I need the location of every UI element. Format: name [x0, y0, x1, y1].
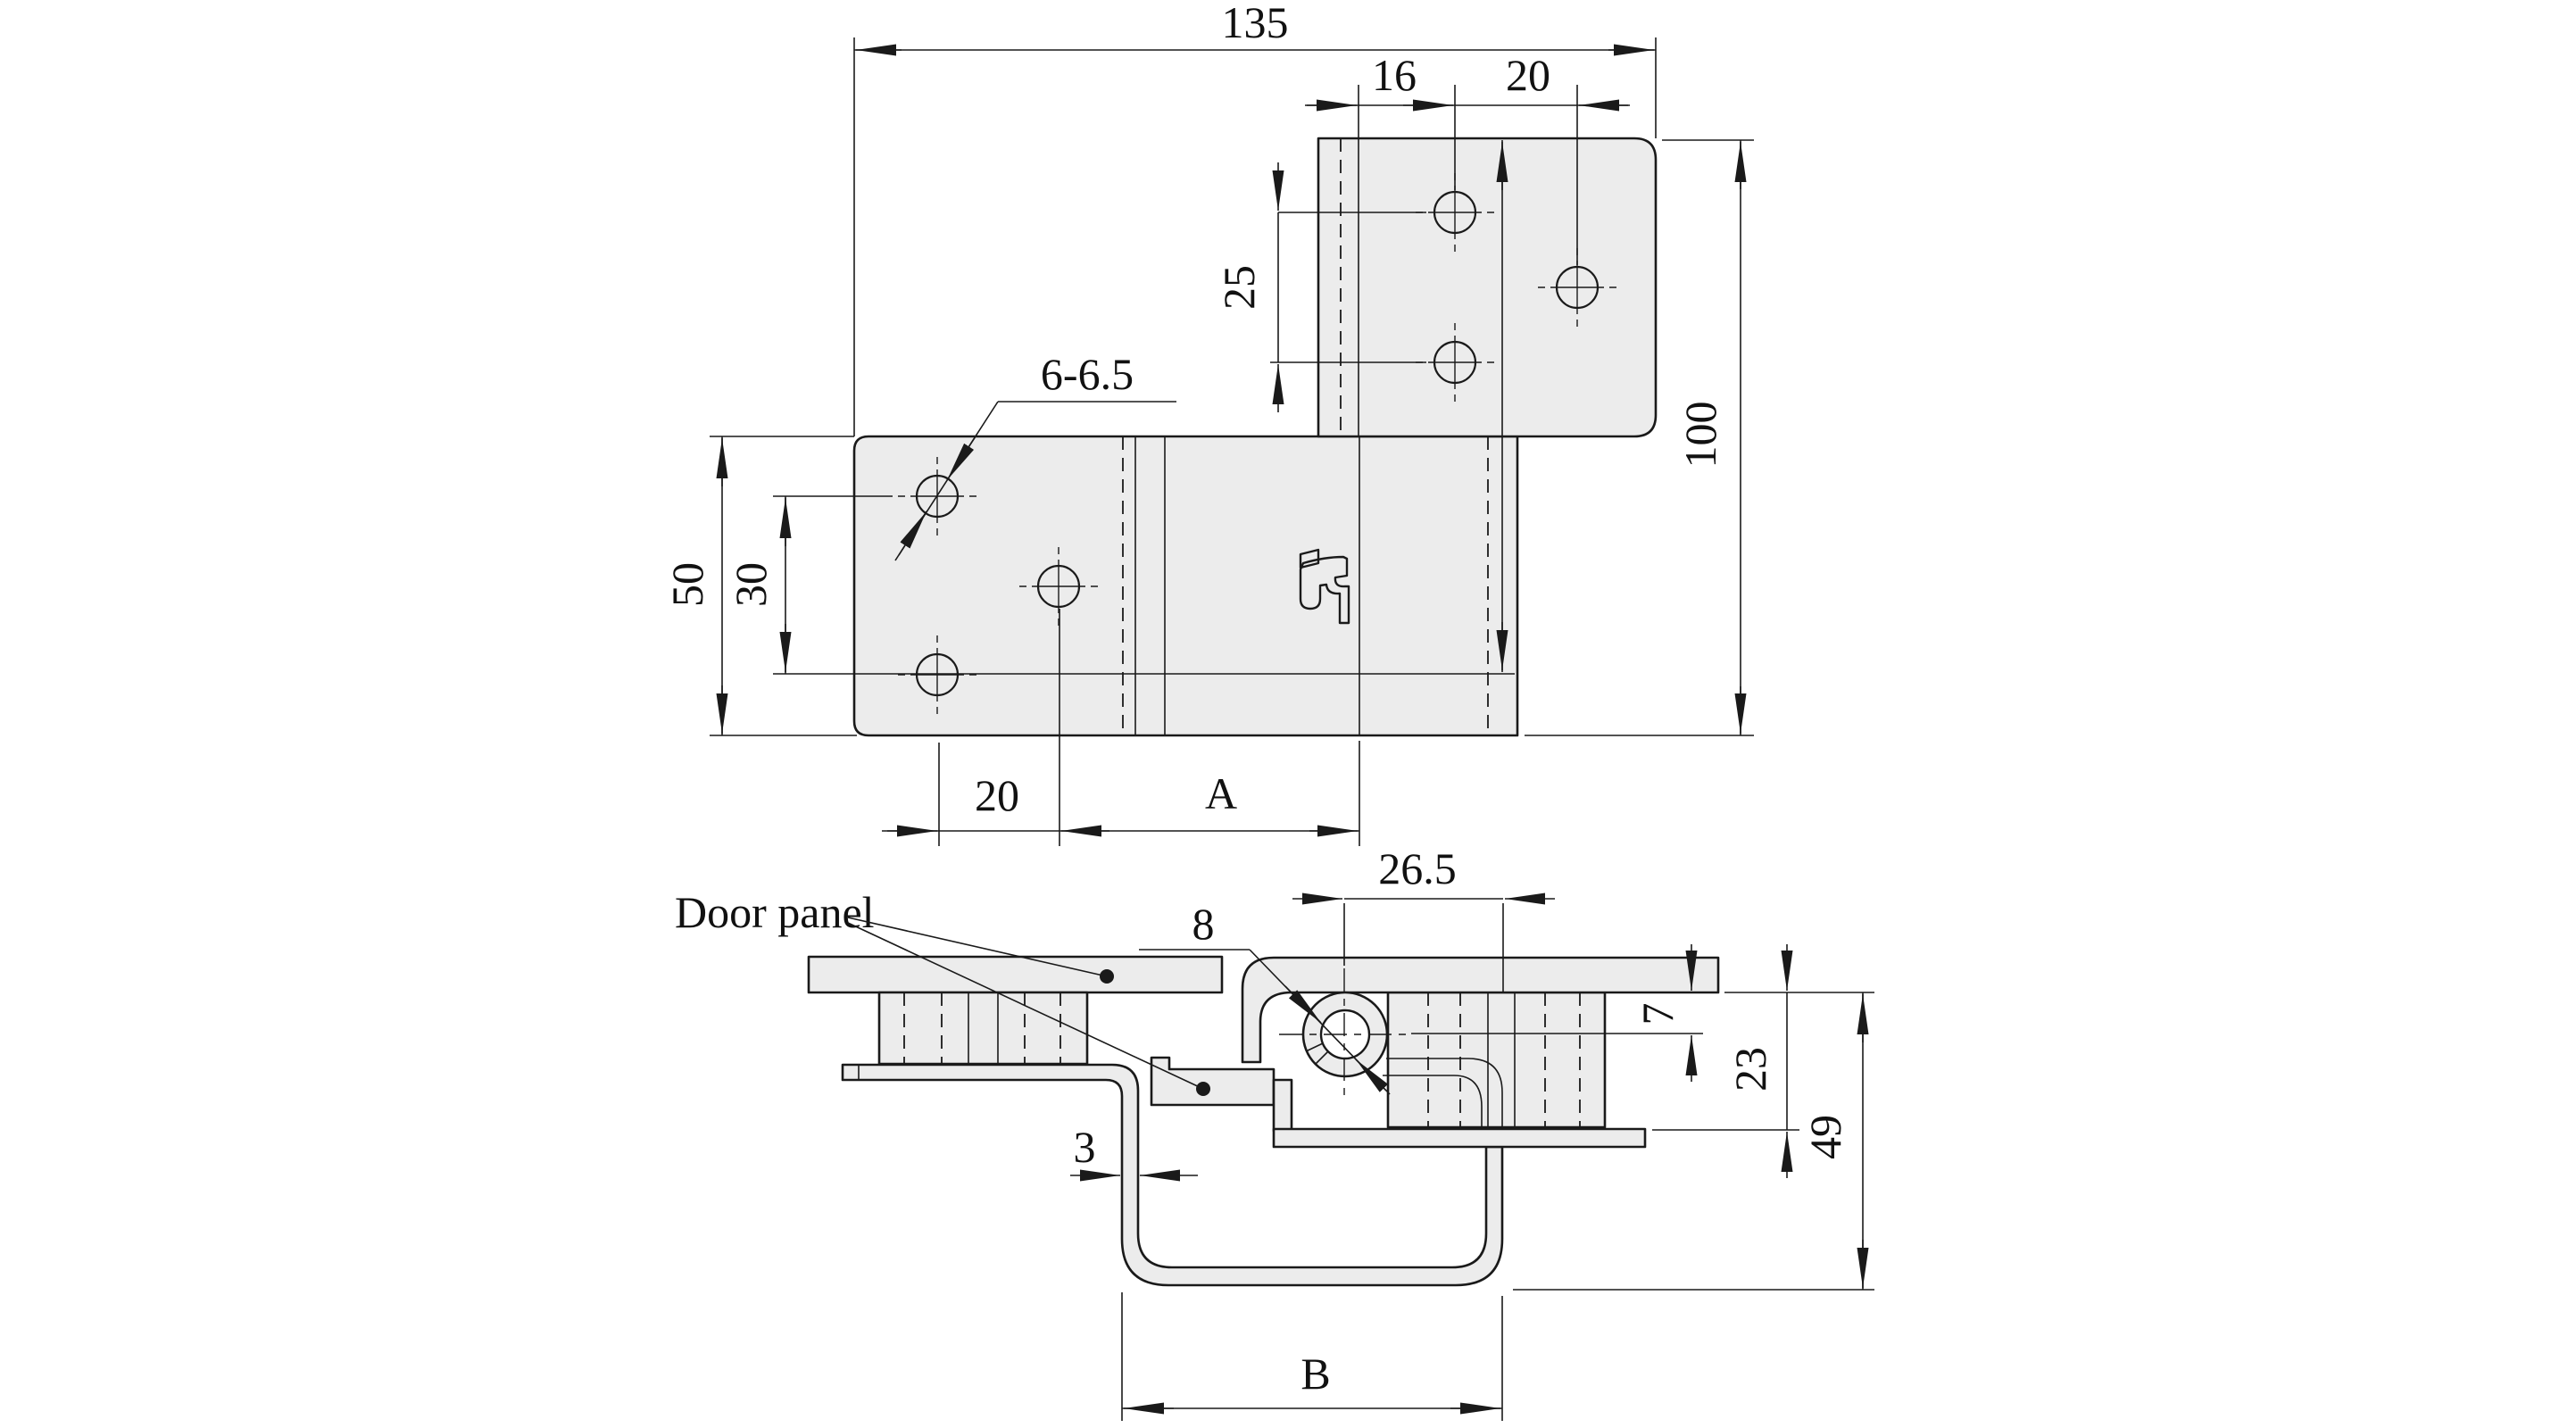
dim-label-20-top: 20	[1506, 50, 1550, 100]
section-view: Door panel 8 26.5 7	[675, 843, 1874, 1421]
dim-label-16: 16	[1372, 50, 1417, 100]
bottom-flange	[1274, 1129, 1645, 1147]
left-door-panel	[809, 957, 1222, 992]
hinge-drawing: 135 16 20 25	[0, 0, 2576, 1428]
left-mounting-blocks	[879, 992, 1087, 1064]
dim-label-B: B	[1300, 1349, 1330, 1399]
dim-label-25: 25	[1214, 265, 1264, 310]
dim-label-100: 100	[1675, 402, 1725, 469]
dim-label-8: 8	[1192, 899, 1215, 949]
panel-edge-wall	[1274, 1080, 1292, 1131]
lower-door-panel	[1151, 1058, 1274, 1105]
dim-label-49: 49	[1800, 1115, 1850, 1159]
dim-label-3: 3	[1074, 1122, 1096, 1172]
plan-view: 135 16 20 25	[662, 0, 1754, 846]
left-leaf-plate	[854, 436, 1517, 735]
dim-label-23: 23	[1725, 1047, 1775, 1092]
dim-label-30: 30	[726, 562, 776, 607]
right-leaf-flap	[1318, 138, 1656, 436]
door-panel-label: Door panel	[675, 887, 875, 937]
dim-label-50: 50	[662, 562, 712, 607]
dim-label-26.5: 26.5	[1378, 843, 1457, 893]
right-mounting-blocks	[1383, 992, 1605, 1127]
dim-label-20-bottom: 20	[975, 770, 1019, 820]
dim-channel-width: B	[1122, 1292, 1502, 1421]
dim-label-135: 135	[1222, 0, 1289, 47]
drawing-canvas: 135 16 20 25	[0, 0, 2576, 1428]
dim-label-A: A	[1205, 768, 1237, 818]
dim-label-7: 7	[1633, 1003, 1683, 1025]
dim-label-6-6.5: 6-6.5	[1041, 349, 1134, 399]
